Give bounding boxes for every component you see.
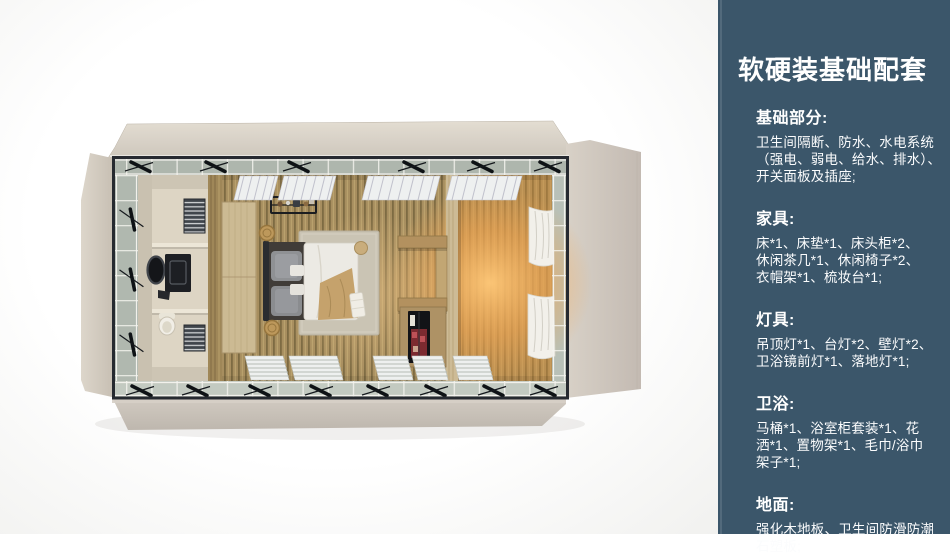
rattan-pouf [260, 226, 275, 241]
wardrobe [222, 202, 256, 353]
section-line: 开关面板及插座; [756, 168, 938, 185]
section-line: 马桶*1、浴室柜套装*1、花 [756, 420, 938, 437]
partition-wall [446, 175, 461, 381]
section-lighting: 灯具: 吊顶灯*1、台灯*2、壁灯*2、 卫浴镜前灯*1、落地灯*1; [756, 306, 938, 370]
section-heading: 基础部分: [756, 104, 938, 128]
section-line: 吊顶灯*1、台灯*2、壁灯*2、 [756, 336, 938, 353]
rattan-pouf [265, 321, 280, 336]
towel-radiator [184, 199, 205, 233]
section-flooring: 地面: 强化木地板、卫生间防滑防潮 石塑板; [756, 491, 938, 555]
vanity-cabinet [165, 254, 191, 292]
bathroom [138, 175, 222, 381]
section-line: （强电、弱电、给水、排水）、 [756, 151, 938, 168]
section-line: 休闲茶几*1、休闲椅子*2、 [756, 252, 938, 269]
section-heading: 灯具: [756, 306, 938, 330]
floor-plan-rendering [0, 0, 718, 534]
panel-title: 软硬装基础配套 [738, 50, 940, 87]
top-flap [108, 121, 572, 158]
folded-towels [349, 292, 365, 318]
vanity-mirror [148, 257, 165, 284]
section-furniture: 家具: 床*1、床垫*1、床头柜*2、 休闲茶几*1、休闲椅子*2、 衣帽架*1… [756, 205, 938, 286]
section-line: 石塑板; [756, 538, 938, 555]
section-line: 卫浴镜前灯*1、落地灯*1; [756, 353, 938, 370]
panel-body: 基础部分: 卫生间隔断、防水、水电系统 （强电、弱电、给水、排水）、 开关面板及… [756, 104, 938, 555]
section-line: 卫生间隔断、防水、水电系统 [756, 134, 938, 151]
section-heading: 家具: [756, 205, 938, 229]
bed [263, 241, 368, 321]
section-line: 床*1、床垫*1、床头柜*2、 [756, 235, 938, 252]
section-bathroom: 卫浴: 马桶*1、浴室柜套装*1、花 洒*1、置物架*1、毛巾/浴巾 架子*1; [756, 390, 938, 471]
section-line: 强化木地板、卫生间防滑防潮 [756, 521, 938, 538]
section-line: 架子*1; [756, 454, 938, 471]
towel-radiator [184, 325, 205, 351]
section-heading: 卫浴: [756, 390, 938, 414]
headboard [263, 241, 269, 321]
accent-pillow [290, 284, 304, 295]
section-line: 洒*1、置物架*1、毛巾/浴巾 [756, 437, 938, 454]
left-flap [81, 153, 112, 397]
section-line: 衣帽架*1、梳妆台*1; [756, 269, 938, 286]
section-heading: 地面: [756, 491, 938, 515]
section-basics: 基础部分: 卫生间隔断、防水、水电系统 （强电、弱电、给水、排水）、 开关面板及… [756, 104, 938, 185]
accent-pillow [290, 265, 304, 276]
knit-pouf [355, 242, 368, 255]
floor-plan-svg [0, 0, 718, 534]
info-panel: 软硬装基础配套 基础部分: 卫生间隔断、防水、水电系统 （强电、弱电、给水、排水… [718, 0, 950, 534]
